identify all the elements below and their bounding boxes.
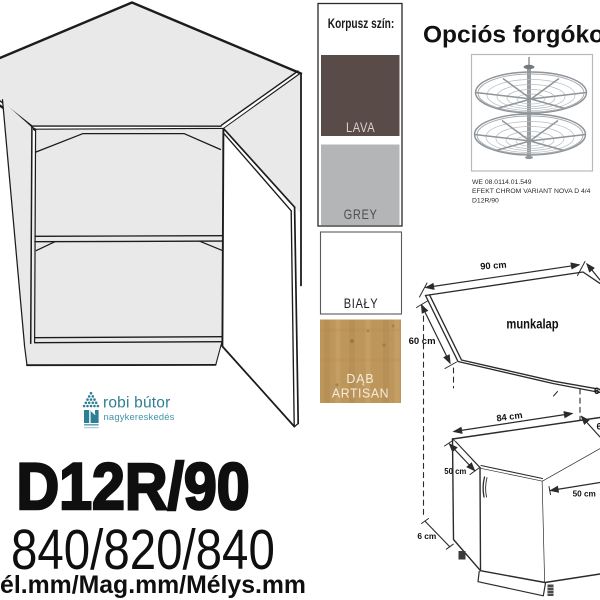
svg-text:WE 08.0114.01.549: WE 08.0114.01.549 <box>472 179 532 186</box>
svg-text:50 cm: 50 cm <box>573 490 596 499</box>
svg-text:ARTISAN: ARTISAN <box>332 386 389 400</box>
svg-text:robi bútor: robi bútor <box>103 395 170 412</box>
svg-text:90 cm: 90 cm <box>480 260 507 272</box>
svg-text:DĄB: DĄB <box>346 372 374 386</box>
svg-text:Korpusz szín:: Korpusz szín: <box>328 15 394 31</box>
svg-text:60 cm: 60 cm <box>597 422 600 432</box>
svg-text:D12R/90: D12R/90 <box>472 197 499 204</box>
svg-text:EFEKT CHROM VARIANT NOVA D 4/4: EFEKT CHROM VARIANT NOVA D 4/4 <box>472 188 591 195</box>
svg-text:LAVA: LAVA <box>346 120 375 135</box>
svg-text:munkalap: munkalap <box>506 316 558 331</box>
svg-text:60 cm: 60 cm <box>409 336 436 347</box>
svg-text:GREY: GREY <box>344 207 378 222</box>
svg-text:Szél.mm/Mag.mm/Mélys.mm: Szél.mm/Mag.mm/Mélys.mm <box>0 572 306 599</box>
svg-text:nagykereskedés: nagykereskedés <box>104 411 175 422</box>
svg-text:BIAŁY: BIAŁY <box>344 296 379 311</box>
svg-text:D12R/90: D12R/90 <box>17 450 250 524</box>
svg-text:50 cm: 50 cm <box>444 467 466 476</box>
svg-text:Opciós forgókosár: Opciós forgókosár <box>423 22 600 49</box>
svg-text:6 cm: 6 cm <box>417 531 436 541</box>
svg-text:60 cm: 60 cm <box>594 386 600 397</box>
